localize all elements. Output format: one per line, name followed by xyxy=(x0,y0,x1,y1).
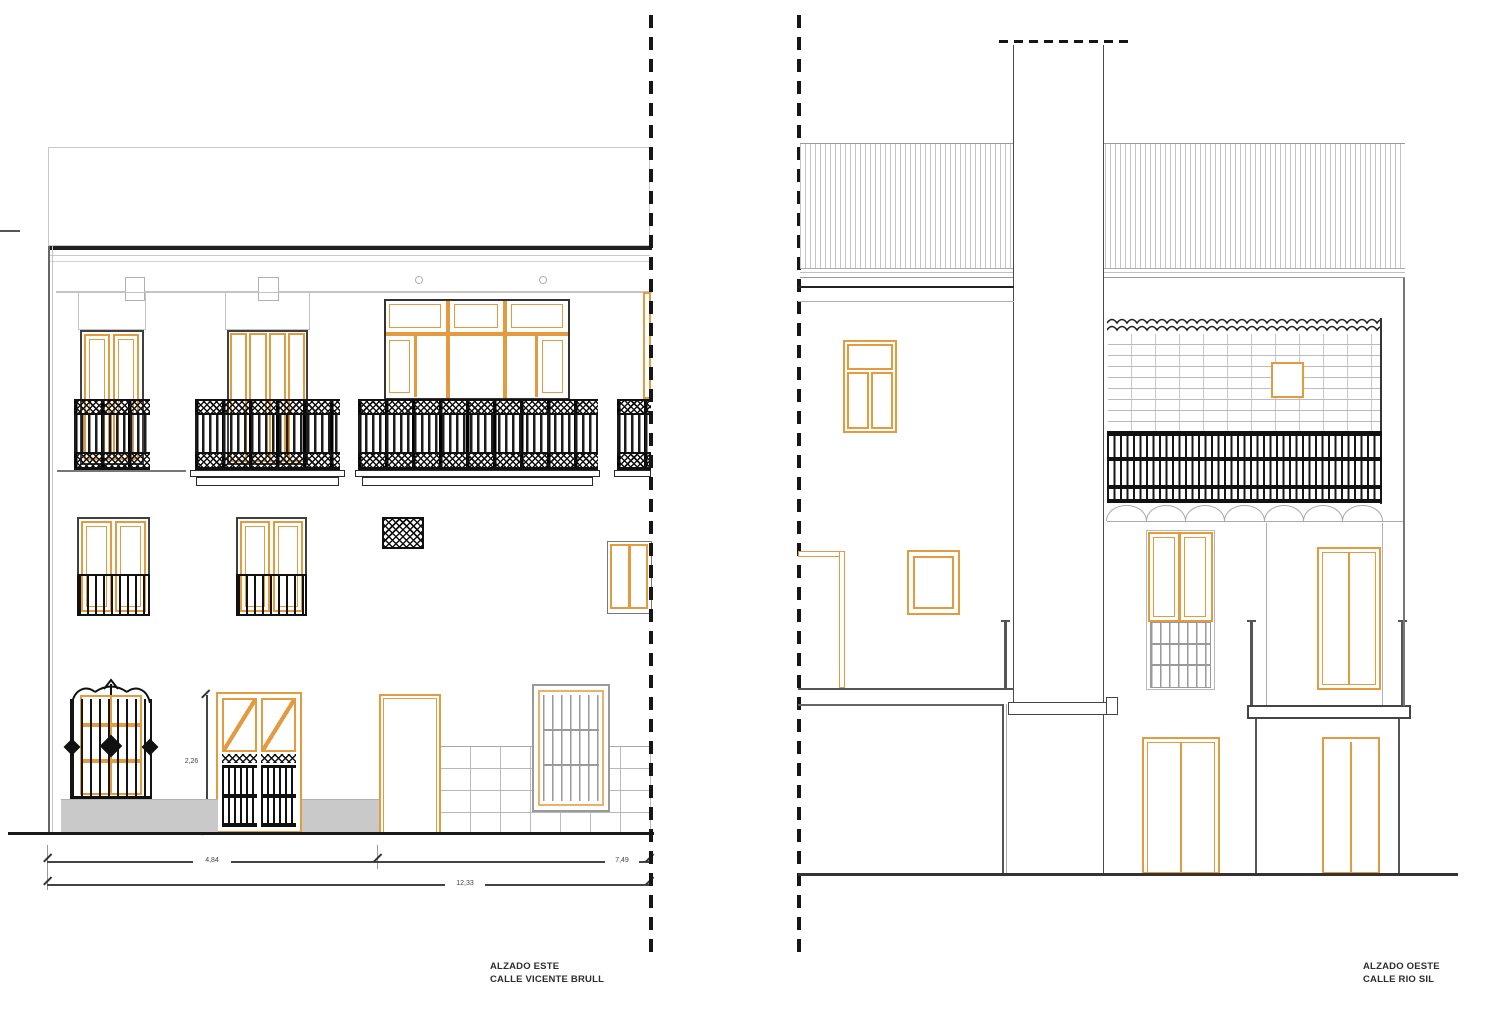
open-doorway xyxy=(379,694,441,833)
window-pane xyxy=(913,556,954,609)
window-pane xyxy=(511,304,563,328)
brick-crest-zigzag xyxy=(1107,317,1382,334)
arch xyxy=(1264,505,1304,521)
ground-line xyxy=(8,832,654,835)
mullion xyxy=(628,546,631,607)
ground-line xyxy=(798,873,1458,876)
arch xyxy=(1106,505,1146,521)
window-pane xyxy=(454,304,498,328)
tripartite-window xyxy=(384,299,570,400)
west-elevation: ALZADO OESTE CALLE RIO SIL xyxy=(750,0,1500,1033)
wall-edge xyxy=(1382,523,1383,705)
railing-post xyxy=(1004,621,1007,689)
window-guard-railing xyxy=(77,574,150,616)
balcony-slab xyxy=(57,470,186,472)
neighbor-window xyxy=(532,684,610,812)
window-pane xyxy=(389,304,441,328)
door-grille xyxy=(222,765,257,827)
chimney-top-dashed-line xyxy=(999,40,1131,43)
wall-edge xyxy=(48,246,50,833)
mullion xyxy=(1348,552,1350,684)
brick-window xyxy=(1271,362,1304,398)
window-lintel xyxy=(78,292,146,330)
cut-door-frame xyxy=(839,551,845,688)
window-grille xyxy=(543,695,599,801)
doorway-inner-line xyxy=(383,698,437,833)
iron-grille-window xyxy=(66,677,156,802)
door-scrollwork xyxy=(222,754,257,763)
window-leaf xyxy=(847,372,869,429)
window-pane xyxy=(389,340,410,393)
balcony-slab xyxy=(1247,705,1411,719)
ornamental-vent xyxy=(382,517,424,549)
east-elevation-subtitle: CALLE VICENTE BRULL xyxy=(490,973,604,986)
datum-mark xyxy=(0,230,20,232)
mullion xyxy=(1178,534,1181,620)
parapet-outline xyxy=(48,147,650,246)
window-lintel xyxy=(225,292,310,330)
dimension-label-door-height: 2,26 xyxy=(180,757,203,766)
wall-edge xyxy=(1266,523,1267,719)
section-cut-line-east xyxy=(649,15,653,960)
west-elevation-caption: ALZADO OESTE CALLE RIO SIL xyxy=(1363,960,1440,986)
dimension-line xyxy=(377,861,605,863)
balcony-slab xyxy=(190,470,345,477)
door-scrollwork xyxy=(261,754,296,763)
east-elevation-caption: ALZADO ESTE CALLE VICENTE BRULL xyxy=(490,960,604,986)
chimney-edge xyxy=(1103,702,1105,874)
door-panel xyxy=(222,698,257,752)
balcony-railing xyxy=(74,399,150,470)
mullion xyxy=(503,301,507,398)
mullion xyxy=(414,336,417,397)
dimension-label-span-right: 7,49 xyxy=(605,856,639,865)
mullion xyxy=(535,336,538,397)
anchor-ring xyxy=(415,276,423,284)
dimension-label-span-total: 12,33 xyxy=(445,879,485,888)
cut-door-frame xyxy=(798,551,845,557)
cornice-band xyxy=(48,246,652,250)
railing-post-cap xyxy=(1001,620,1010,622)
railing-post-cap xyxy=(1247,620,1256,622)
dimension-label-span-left: 4,84 xyxy=(193,856,231,865)
balcony-railing xyxy=(358,399,598,470)
balcony-slab xyxy=(196,477,339,486)
door-center-line xyxy=(1180,742,1182,872)
wall-edge xyxy=(1255,719,1257,874)
balcony-slab xyxy=(614,470,651,477)
balcony-base-line xyxy=(1107,521,1405,522)
wall-edge xyxy=(1006,704,1007,874)
door-leaf xyxy=(261,698,296,829)
chimney xyxy=(1013,45,1104,702)
railing-post xyxy=(1250,621,1253,706)
ledge-lip xyxy=(1106,697,1118,715)
door-center-line xyxy=(1350,742,1352,872)
wall-edge xyxy=(1002,704,1004,874)
balcony-railing xyxy=(195,399,340,470)
wall-top-line xyxy=(798,286,1014,288)
balcony-railing xyxy=(617,399,651,470)
door-pane xyxy=(1184,537,1206,617)
arch xyxy=(1146,505,1186,521)
ground-door xyxy=(1142,737,1220,874)
wall-line xyxy=(798,301,1014,302)
dimension-line xyxy=(47,861,193,863)
arch xyxy=(1224,505,1264,521)
terrace-parapet-line xyxy=(798,688,1014,690)
transom-pane xyxy=(847,344,893,370)
window-guard-railing xyxy=(236,574,307,616)
ledge-slab xyxy=(1008,702,1118,715)
entrance-door xyxy=(216,692,302,833)
building-right-edge xyxy=(1403,278,1405,706)
terrace-band-line xyxy=(798,704,1004,706)
balcony-slab xyxy=(362,477,593,486)
east-elevation: 2,26 4,84 7,49 12,33 xyxy=(0,0,750,1033)
door-leaf xyxy=(222,698,257,829)
window xyxy=(843,340,897,433)
door-panel xyxy=(261,698,296,752)
cornice-line xyxy=(50,255,650,256)
wall-edge xyxy=(52,246,53,833)
arch xyxy=(1185,505,1225,521)
small-window xyxy=(907,550,960,615)
window-leaf xyxy=(871,372,893,429)
balcony-door-grille xyxy=(1150,622,1211,688)
cut-window xyxy=(607,541,652,614)
balcony-door xyxy=(1148,532,1213,622)
window-leaves xyxy=(847,372,893,429)
mullion xyxy=(446,301,450,398)
window-pane xyxy=(542,340,563,393)
balcony-lattice-railing xyxy=(1107,431,1382,503)
arch-row xyxy=(1107,504,1382,521)
brick-wall xyxy=(1108,334,1382,431)
balcony-slab xyxy=(355,470,600,477)
elevation-sheet: 2,26 4,84 7,49 12,33 xyxy=(0,0,1500,1033)
east-elevation-title: ALZADO ESTE xyxy=(490,960,604,973)
west-elevation-title: ALZADO OESTE xyxy=(1363,960,1440,973)
dimension-line xyxy=(47,884,445,886)
wall-edge xyxy=(1398,719,1400,874)
door-pane xyxy=(1153,537,1175,617)
door-grille xyxy=(261,765,296,827)
arch xyxy=(1342,505,1382,521)
dimension-line xyxy=(485,884,650,886)
west-elevation-subtitle: CALLE RIO SIL xyxy=(1363,973,1440,986)
tall-window xyxy=(1317,547,1381,690)
arch xyxy=(1303,505,1343,521)
dimension-line xyxy=(231,861,377,863)
pavement xyxy=(61,799,218,833)
anchor-ring xyxy=(539,276,547,284)
pavement xyxy=(302,799,379,833)
cornice-line xyxy=(50,261,650,262)
ground-door xyxy=(1322,737,1380,874)
